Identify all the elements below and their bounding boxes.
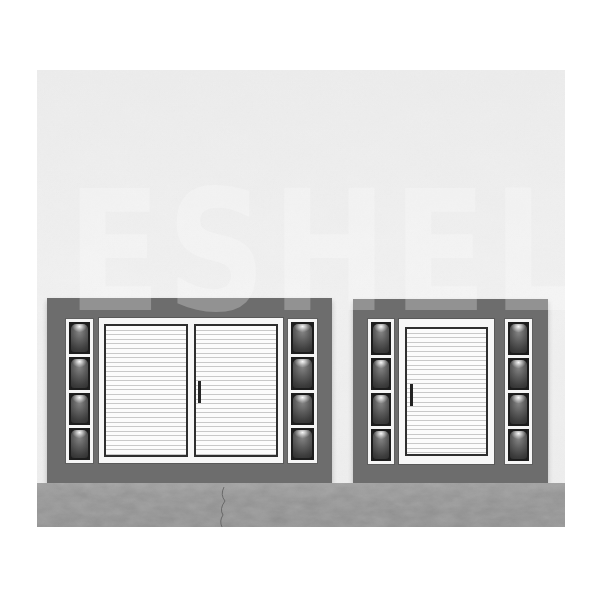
light-niche [69, 393, 90, 425]
downlight-glow [510, 395, 527, 424]
left-unit-right-light-column [288, 319, 317, 463]
left-unit-door-handle [198, 381, 201, 403]
light-niche [291, 322, 314, 354]
right-unit-shutter-door [405, 327, 488, 456]
downlight-glow [373, 324, 389, 353]
downlight-glow [293, 359, 312, 387]
light-niche [371, 429, 391, 462]
floor-texture [37, 483, 565, 527]
downlight-glow [71, 359, 88, 387]
light-niche [69, 322, 90, 354]
right-unit-door-handle [410, 384, 413, 406]
light-niche [69, 428, 90, 460]
light-niche [291, 393, 314, 425]
downlight-glow [510, 431, 527, 460]
downlight-glow [373, 431, 389, 460]
downlight-glow [71, 430, 88, 458]
right-shutter-unit-panel [353, 299, 548, 483]
right-unit-left-light-column [368, 319, 394, 464]
left-shutter-unit-panel [47, 298, 332, 483]
downlight-glow [293, 430, 312, 458]
concrete-floor [37, 483, 565, 527]
light-niche [508, 358, 529, 391]
light-niche [508, 429, 529, 462]
light-niche [371, 393, 391, 426]
right-unit-right-light-column [505, 319, 532, 464]
light-niche [69, 357, 90, 389]
downlight-glow [293, 395, 312, 423]
downlight-glow [373, 395, 389, 424]
light-niche [371, 322, 391, 355]
left-unit-shutter-right-leaf [194, 324, 278, 457]
light-niche [291, 357, 314, 389]
left-unit-shutter-left-leaf [104, 324, 188, 457]
downlight-glow [71, 324, 88, 352]
downlight-glow [510, 324, 527, 353]
left-unit-door-frame [99, 318, 283, 463]
downlight-glow [293, 324, 312, 352]
downlight-glow [71, 395, 88, 423]
light-niche [508, 393, 529, 426]
downlight-glow [373, 360, 389, 389]
product-photo: ESHEL [37, 70, 565, 527]
light-niche [291, 428, 314, 460]
left-unit-left-light-column [66, 319, 93, 463]
light-niche [371, 358, 391, 391]
downlight-glow [510, 360, 527, 389]
right-unit-door-frame [399, 319, 494, 464]
light-niche [508, 322, 529, 355]
